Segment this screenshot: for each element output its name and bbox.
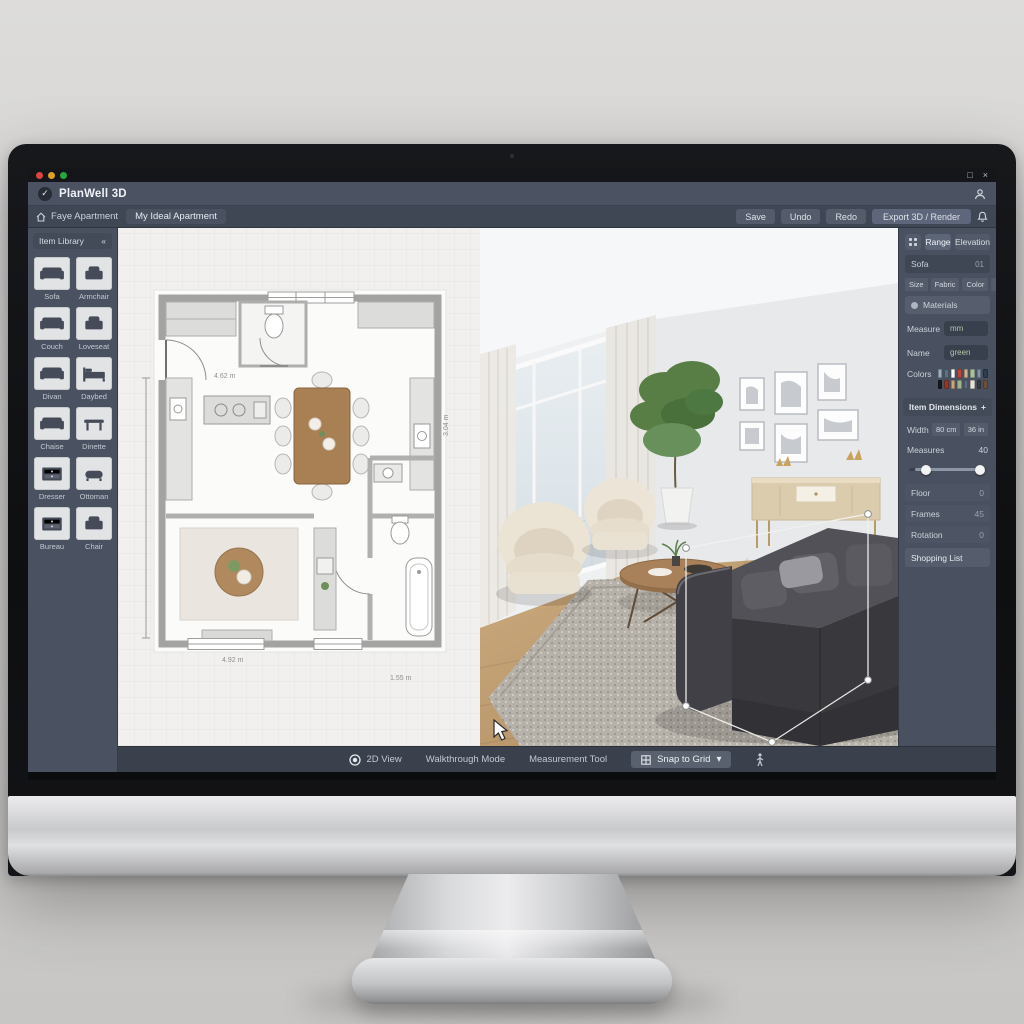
render-scene	[480, 228, 898, 746]
color-swatch-5[interactable]	[970, 369, 975, 378]
library-item-dresser[interactable]: Dresser	[34, 457, 70, 501]
color-swatch-3[interactable]	[957, 369, 962, 378]
color-swatch-2[interactable]	[951, 369, 956, 378]
undo-button[interactable]: Undo	[781, 209, 821, 224]
render-viewport[interactable]	[480, 228, 898, 746]
library-item-daybed[interactable]: Daybed	[76, 357, 112, 401]
measures-slider[interactable]	[909, 468, 986, 471]
slider-label: Measures	[907, 445, 944, 455]
collapse-sidebar-icon[interactable]: «	[101, 236, 106, 246]
property-row-frames[interactable]: Frames45	[905, 505, 990, 522]
slider-thumb-left[interactable]	[921, 465, 931, 475]
home-icon	[36, 212, 46, 222]
project-name[interactable]: Faye Apartment	[51, 211, 118, 222]
selected-item-field[interactable]: Sofa 01	[905, 255, 990, 273]
chip-finish[interactable]: Finish	[991, 278, 996, 291]
minimize-traffic-light[interactable]	[48, 172, 55, 179]
color-swatch-14[interactable]	[977, 380, 982, 389]
slider-value: 40	[979, 445, 988, 455]
menu-bar: Faye Apartment My Ideal Apartment SaveUn…	[28, 206, 996, 228]
armchair-icon	[81, 264, 107, 284]
color-swatch-10[interactable]	[951, 380, 956, 389]
monitor: □ × ✓ PlanWell 3D Faye Apartment My Idea…	[8, 144, 1016, 876]
name-input[interactable]: green	[944, 345, 988, 360]
floorplan-canvas[interactable]: 4.62 m 3.04 m 4.92 m 1.55 m	[118, 228, 480, 746]
close-button[interactable]: ×	[983, 171, 988, 180]
monitor-chin	[8, 796, 1016, 876]
library-item-loveseat[interactable]: Loveseat	[76, 307, 112, 351]
shopping-list-button[interactable]: Shopping List	[905, 548, 990, 567]
view-mode-icon	[349, 754, 361, 766]
expand-icon: +	[981, 402, 986, 412]
account-icon[interactable]	[974, 188, 986, 200]
snap-to-grid-toggle[interactable]: Snap to Grid ▾	[631, 751, 731, 768]
library-item-chaise[interactable]: Chaise	[34, 407, 70, 451]
color-swatch-6[interactable]	[977, 369, 982, 378]
measure-label: Measure	[907, 324, 940, 334]
screen: □ × ✓ PlanWell 3D Faye Apartment My Idea…	[28, 168, 996, 780]
sofa-icon	[39, 264, 65, 284]
caret-down-icon: ▾	[716, 755, 721, 765]
color-swatch-15[interactable]	[983, 380, 988, 389]
color-swatch-7[interactable]	[983, 369, 988, 378]
close-traffic-light[interactable]	[36, 172, 43, 179]
title-bar: ✓ PlanWell 3D	[28, 182, 996, 206]
floorplan-drawing: 4.62 m 3.04 m 4.92 m 1.55 m	[118, 228, 480, 746]
color-swatch-1[interactable]	[944, 369, 949, 378]
table-icon	[81, 414, 107, 434]
sofa-icon	[39, 364, 65, 384]
app-title: PlanWell 3D	[59, 188, 127, 200]
color-swatch-0[interactable]	[938, 369, 943, 378]
tab-range[interactable]: Range	[925, 234, 951, 250]
sofa-icon	[39, 414, 65, 434]
chip-size[interactable]: Size	[905, 278, 928, 291]
chip-fabric[interactable]: Fabric	[931, 278, 960, 291]
property-row-floor[interactable]: Floor0	[905, 484, 990, 501]
library-item-bureau[interactable]: Bureau	[34, 507, 70, 551]
tab-elevation[interactable]: Elevation	[955, 234, 990, 250]
dresser-icon	[39, 514, 65, 534]
swatch-icon	[911, 302, 918, 309]
app-window: □ × ✓ PlanWell 3D Faye Apartment My Idea…	[28, 168, 996, 772]
monitor-stand-base	[352, 958, 672, 1004]
slider-thumb-right[interactable]	[975, 465, 985, 475]
ottoman-icon	[81, 464, 107, 484]
zoom-traffic-light[interactable]	[60, 172, 67, 179]
width-in-chip[interactable]: 36 in	[964, 423, 988, 436]
walkthrough-mode-button[interactable]: Walkthrough Mode	[426, 754, 505, 765]
color-swatch-11[interactable]	[957, 380, 962, 389]
color-swatch-9[interactable]	[944, 380, 949, 389]
color-swatch-13[interactable]	[970, 380, 975, 389]
walk-person-icon[interactable]	[755, 753, 765, 767]
measure-value[interactable]: mm	[944, 321, 988, 336]
library-title: Item Library	[39, 236, 84, 246]
color-swatch-12[interactable]	[964, 380, 969, 389]
measurement-tool-button[interactable]: Measurement Tool	[529, 754, 607, 765]
export-render-button[interactable]: Export 3D / Render	[872, 209, 971, 224]
armchair-icon	[81, 514, 107, 534]
library-item-ottoman[interactable]: Ottoman	[76, 457, 112, 501]
color-swatch-8[interactable]	[938, 380, 943, 389]
color-swatch-4[interactable]	[964, 369, 969, 378]
bed-icon	[81, 364, 107, 384]
dim-label-living: 4.92 m	[222, 657, 244, 664]
redo-button[interactable]: Redo	[826, 209, 866, 224]
app-logo-icon: ✓	[38, 187, 52, 201]
bottom-toolbar: 2D View Walkthrough Mode Measurement Too…	[118, 746, 996, 772]
window-chrome: □ ×	[28, 168, 996, 182]
panel-grid-icon[interactable]	[905, 234, 921, 250]
library-item-armchair[interactable]: Armchair	[76, 257, 112, 301]
library-item-sofa[interactable]: Sofa	[34, 257, 70, 301]
property-row-rotation[interactable]: Rotation0	[905, 526, 990, 543]
library-sidebar: Item Library « SofaArmchairCouchLoveseat…	[28, 228, 118, 772]
library-item-chair[interactable]: Chair	[76, 507, 112, 551]
save-button[interactable]: Save	[736, 209, 775, 224]
maximize-button[interactable]: □	[967, 171, 972, 180]
document-tab[interactable]: My Ideal Apartment	[126, 209, 226, 224]
webcam-dot	[510, 154, 514, 158]
colors-label: Colors	[907, 369, 932, 379]
bell-icon[interactable]	[977, 211, 988, 223]
monitor-stand-neck	[366, 874, 660, 970]
dim-label-kitchen: 4.62 m	[214, 373, 236, 380]
chip-color[interactable]: Color	[962, 278, 988, 291]
sofa-icon	[39, 314, 65, 334]
properties-panel: Range Elevation Sofa 01 SizeFabricColorF…	[898, 228, 996, 746]
grid-icon	[641, 755, 651, 765]
library-item-divan[interactable]: Divan	[34, 357, 70, 401]
name-label: Name	[907, 348, 930, 358]
dim-label-right: 3.04 m	[443, 414, 450, 436]
armchair-icon	[81, 314, 107, 334]
dresser-icon	[39, 464, 65, 484]
library-item-dinette[interactable]: Dinette	[76, 407, 112, 451]
view-2d-toggle[interactable]: 2D View	[349, 754, 402, 766]
library-item-couch[interactable]: Couch	[34, 307, 70, 351]
width-label: Width	[907, 425, 929, 435]
materials-dropdown[interactable]: Materials	[905, 296, 990, 314]
item-dimensions-section[interactable]: Item Dimensions +	[903, 398, 992, 416]
dim-label-bottom: 1.55 m	[390, 675, 412, 682]
width-cm-chip[interactable]: 80 cm	[932, 423, 960, 436]
